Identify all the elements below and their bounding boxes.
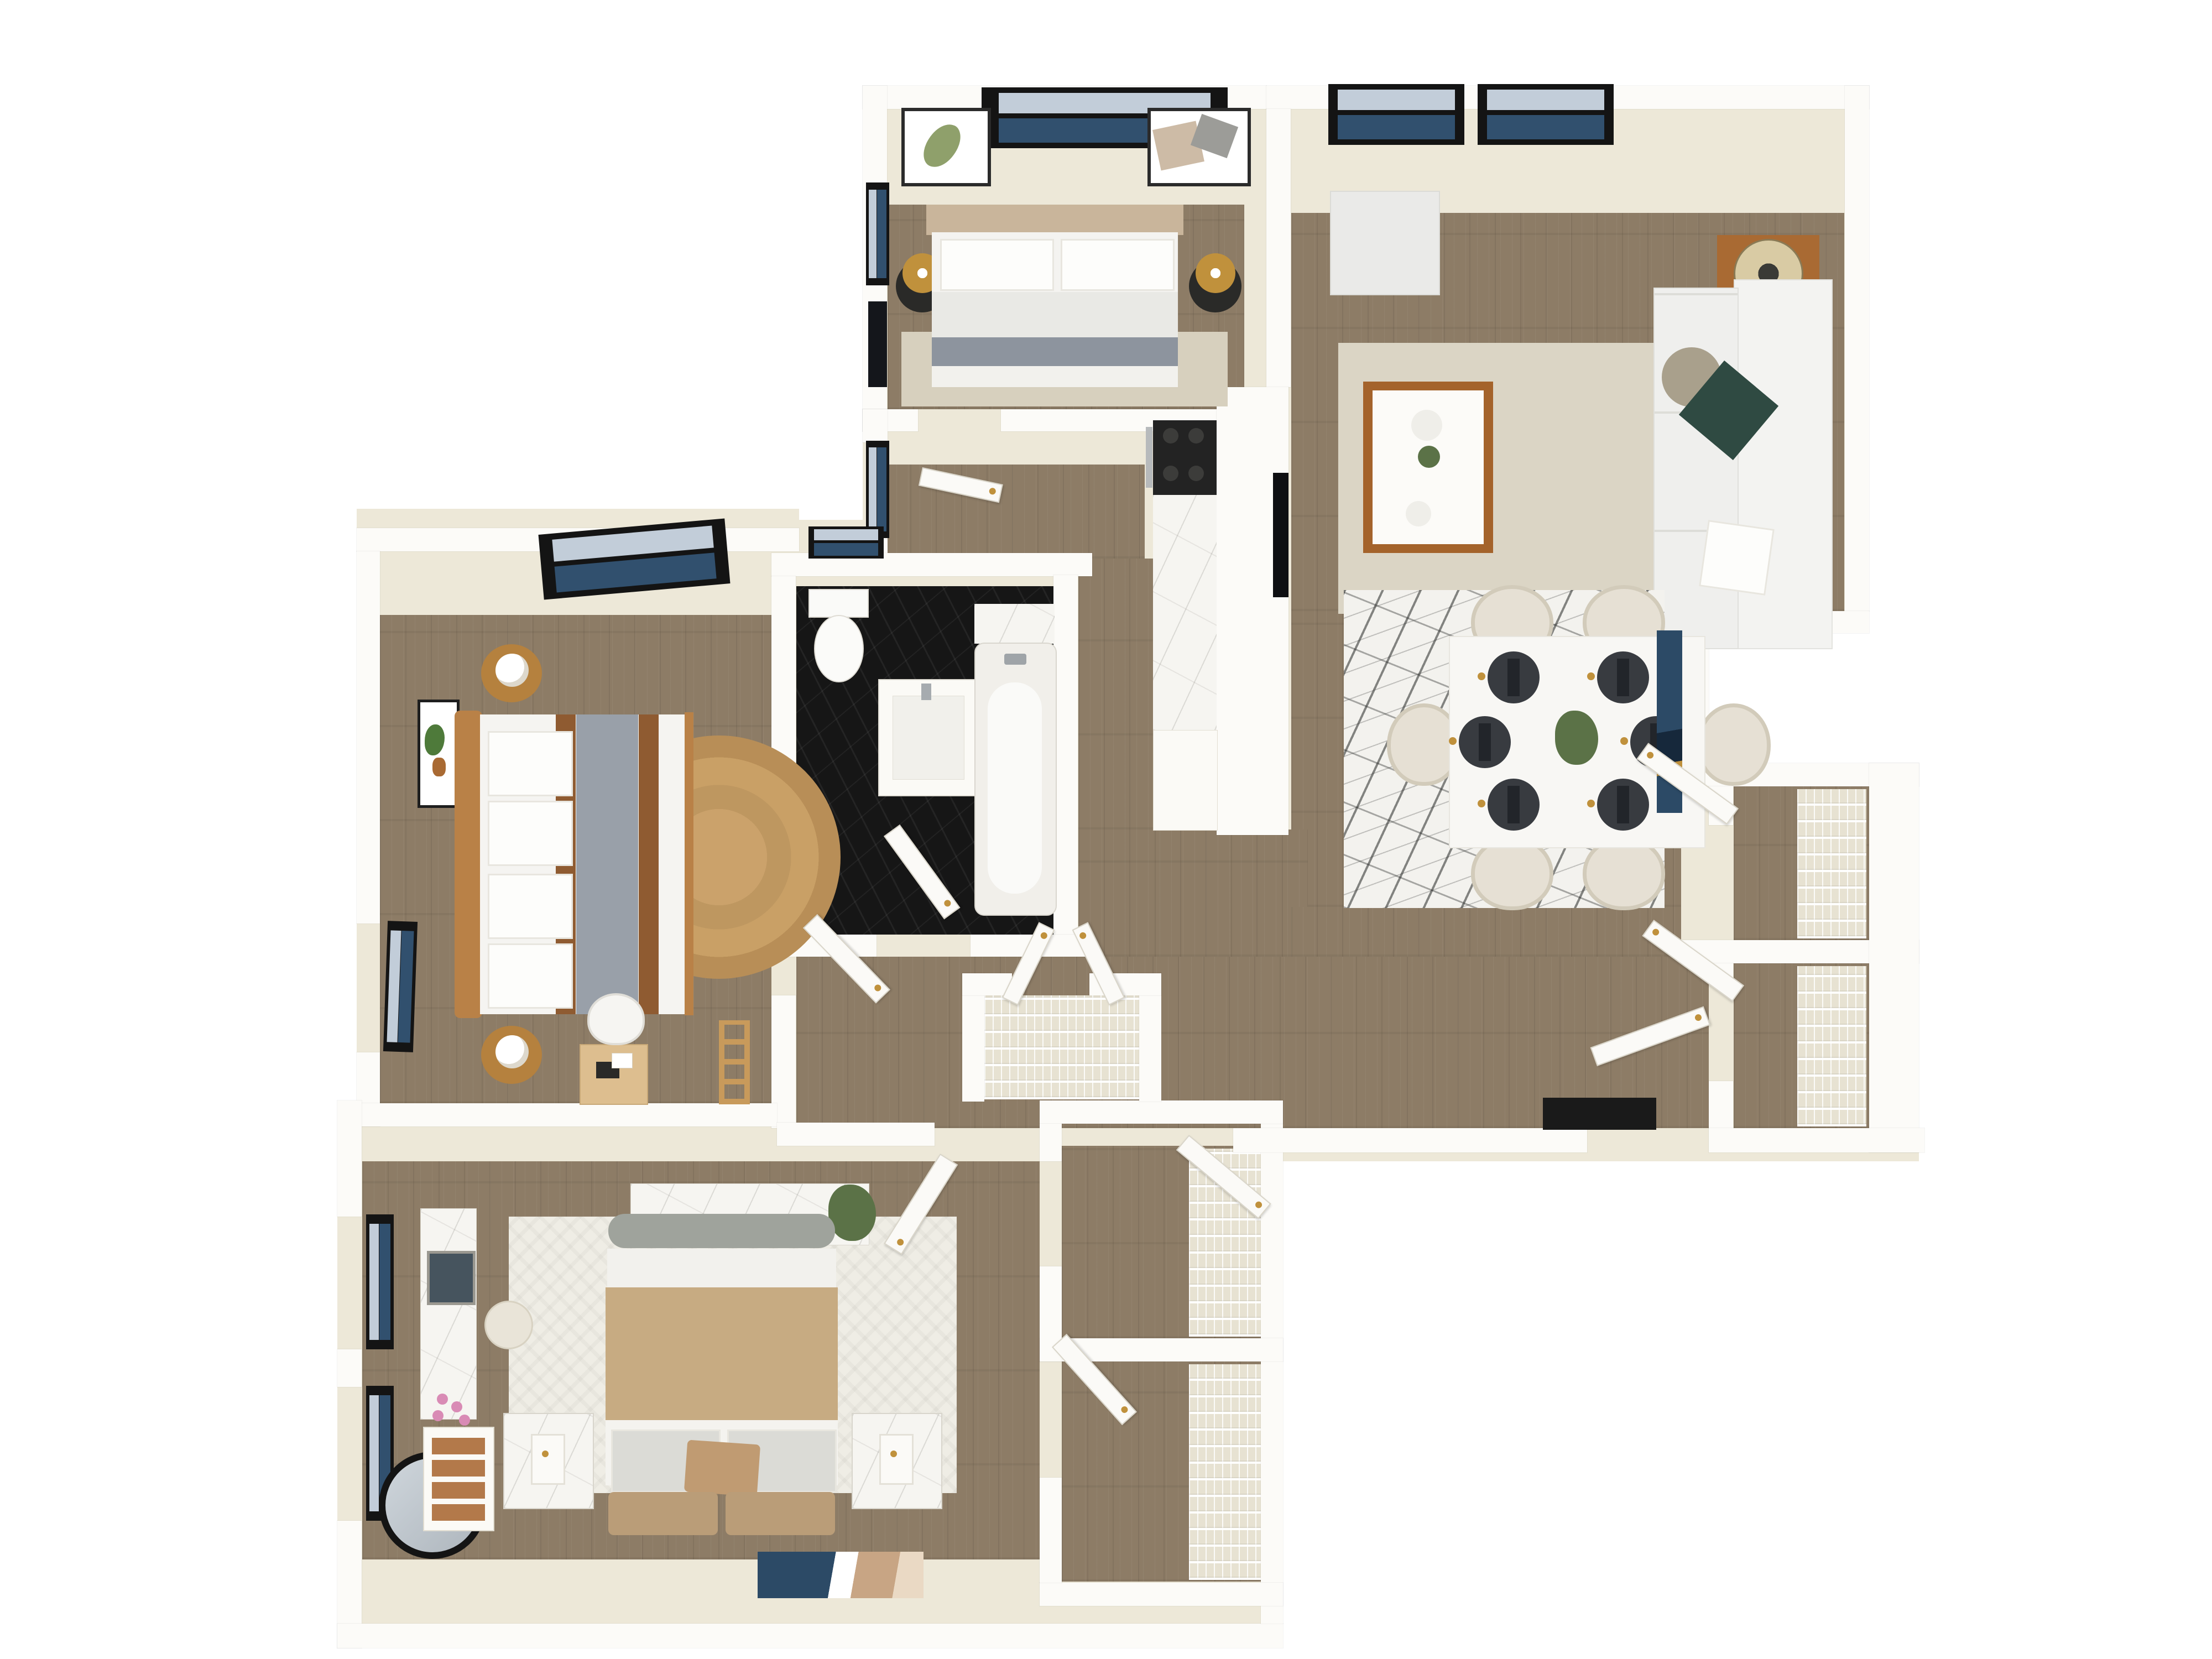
bed-pillow xyxy=(488,874,573,939)
leaf-shape xyxy=(919,118,966,173)
wall-segment xyxy=(1869,763,1919,1152)
drum-lamp-right xyxy=(1196,253,1235,293)
bed-pillow xyxy=(1061,239,1175,291)
tub-faucet-icon xyxy=(1004,654,1026,665)
bed-foot-rail xyxy=(685,712,693,1015)
cooktop xyxy=(1153,420,1217,495)
wall-segment xyxy=(777,1123,935,1146)
sphere-lamp-bottom xyxy=(495,1035,529,1068)
place-setting xyxy=(1488,651,1540,703)
wall-segment xyxy=(1266,109,1291,387)
place-setting xyxy=(1597,779,1649,831)
wall-segment xyxy=(1845,86,1869,611)
nightstand-primary-right xyxy=(852,1413,942,1509)
decor-plate xyxy=(1411,410,1442,441)
desk-chair xyxy=(587,993,645,1045)
nightstand-primary-left xyxy=(503,1413,594,1509)
wall-segment xyxy=(337,1100,362,1217)
window-bedroom-top-west xyxy=(866,182,889,285)
closet-east-1-shelving xyxy=(1797,789,1866,938)
bathroom-vanity xyxy=(878,679,979,796)
wall-segment xyxy=(357,551,380,924)
ottoman-cube xyxy=(1330,191,1440,295)
cooktop-handle xyxy=(1146,427,1152,488)
window-bathroom xyxy=(808,526,884,559)
window-corridor-west xyxy=(866,441,889,538)
art-primary-abstract xyxy=(758,1552,924,1598)
vanity-primary xyxy=(420,1208,477,1420)
bed-duvet-tan xyxy=(606,1287,838,1421)
bed-foot-fold xyxy=(932,366,1178,387)
wall-segment xyxy=(1040,1100,1283,1124)
place-setting xyxy=(1597,651,1649,703)
burner xyxy=(1163,428,1178,444)
closet-b-shelving xyxy=(1189,1364,1261,1580)
vanity-faucet-icon xyxy=(921,684,931,700)
wall-segment xyxy=(1233,1128,1587,1152)
bed-pillow xyxy=(940,239,1054,291)
window-primary-west-1 xyxy=(366,1214,394,1349)
toilet-tank xyxy=(808,589,869,618)
wall-segment xyxy=(1261,1100,1283,1624)
art-abstract-print xyxy=(1147,108,1251,186)
dining-chair xyxy=(1697,703,1771,786)
lamp-primary xyxy=(531,1434,565,1485)
coffee-table-top xyxy=(1373,390,1484,544)
floor-kitchen-strip xyxy=(1078,559,1153,830)
blanket-ladder xyxy=(719,1020,750,1104)
art-accent xyxy=(432,758,446,776)
sphere-lamp-top xyxy=(495,654,529,687)
wall-segment xyxy=(1053,575,1078,935)
floor-kitchen-south xyxy=(1078,830,1308,957)
dresser-drawers xyxy=(432,1437,485,1521)
window-bedroom-left-west xyxy=(383,921,418,1052)
kitchen-counter-marble xyxy=(1153,495,1217,730)
place-setting xyxy=(1459,716,1511,768)
bed-headboard-rattan xyxy=(455,711,482,1018)
entry-doormat xyxy=(1543,1098,1656,1130)
bed-accent-pillow-tan xyxy=(684,1440,760,1497)
tub-marble-surround xyxy=(974,604,1055,644)
desk-paper xyxy=(612,1053,633,1068)
headboard-cushion xyxy=(608,1492,718,1535)
bed-bolster-gray xyxy=(608,1214,835,1248)
plant-console xyxy=(828,1185,876,1241)
wall-kitchen-cabinet-row xyxy=(1217,387,1288,835)
art-leaf-print xyxy=(901,108,991,186)
wall-segment xyxy=(863,409,888,442)
wall-segment xyxy=(1709,1128,1924,1152)
wall-segment xyxy=(1040,1124,1062,1161)
kitchen-base-cabinet xyxy=(1153,730,1218,831)
bed-stripe-rust xyxy=(639,714,659,1014)
pillow-white xyxy=(1699,520,1775,596)
burner xyxy=(1163,466,1178,481)
cherry-blossoms xyxy=(437,1394,448,1405)
tv-bedroom-top xyxy=(868,301,887,387)
vanity-basin xyxy=(893,696,964,780)
sofa-back xyxy=(1734,279,1833,649)
wall-segment xyxy=(337,1349,362,1387)
decor-plant xyxy=(1418,446,1440,468)
vanity-mirror xyxy=(427,1251,476,1305)
burner xyxy=(1188,428,1204,444)
wall-segment xyxy=(1709,1081,1733,1128)
window-living-1 xyxy=(1328,84,1464,145)
bed-pillow xyxy=(488,801,573,866)
linen-closet-shelving xyxy=(984,995,1139,1099)
dresser xyxy=(423,1427,494,1531)
bathtub xyxy=(974,643,1057,916)
vanity-stool xyxy=(484,1301,533,1349)
bed-pillow xyxy=(488,943,573,1009)
tv-living xyxy=(1273,473,1288,597)
bed-headboard xyxy=(926,205,1183,235)
headboard-cushion xyxy=(726,1492,835,1535)
lamp-primary xyxy=(879,1434,914,1485)
window-living-2 xyxy=(1478,84,1614,145)
bed-sheet-fold xyxy=(607,1249,836,1287)
desk xyxy=(580,1044,648,1105)
burner xyxy=(1188,466,1204,481)
bed-throw-gray xyxy=(932,337,1178,368)
bed-pillow xyxy=(488,731,573,796)
decor-vase xyxy=(1406,501,1431,526)
dining-centerpiece-plant xyxy=(1555,711,1598,765)
wall-segment xyxy=(337,1624,1283,1648)
monstera-leaf xyxy=(425,724,445,755)
floor-hall-east xyxy=(1291,907,1681,957)
bed-band-gray xyxy=(576,714,638,1014)
bed-duvet xyxy=(932,292,1178,339)
bathtub-basin xyxy=(988,682,1042,894)
closet-east-2-shelving xyxy=(1797,966,1866,1126)
sofa-seats xyxy=(1653,288,1739,649)
floorplan-canvas xyxy=(0,0,2212,1659)
toilet-bowl xyxy=(814,615,864,682)
place-setting xyxy=(1488,779,1540,831)
wall-segment xyxy=(357,1103,777,1126)
wall-segment xyxy=(1040,1478,1062,1583)
art-monstera-print xyxy=(418,700,460,808)
wall-segment xyxy=(1040,1583,1283,1606)
